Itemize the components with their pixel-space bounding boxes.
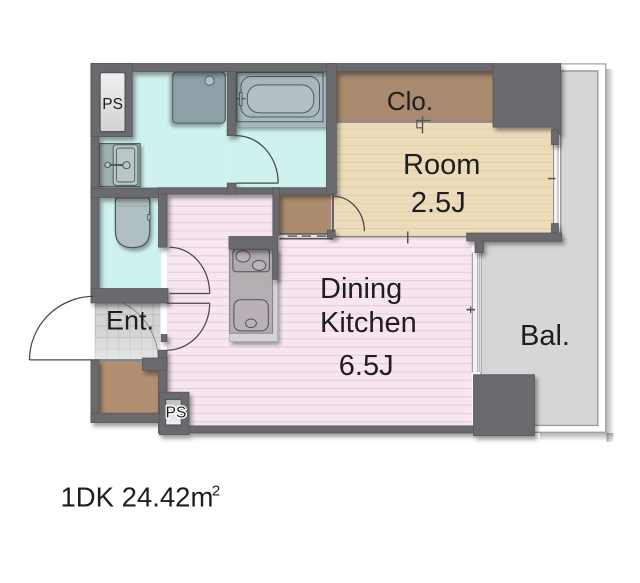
svg-text:PS: PS [166, 405, 187, 422]
svg-text:Room: Room [403, 149, 480, 181]
svg-text:Dining: Dining [320, 273, 402, 305]
svg-text:Ent.: Ent. [106, 306, 154, 336]
svg-text:Clo.: Clo. [387, 86, 433, 116]
svg-text:PS: PS [102, 96, 123, 113]
svg-text:6.5J: 6.5J [339, 350, 394, 382]
svg-text:1DK 24.42m2: 1DK 24.42m2 [61, 481, 221, 512]
svg-text:Bal.: Bal. [520, 320, 570, 352]
svg-text:2.5J: 2.5J [411, 187, 466, 219]
svg-text:Kitchen: Kitchen [320, 307, 417, 339]
